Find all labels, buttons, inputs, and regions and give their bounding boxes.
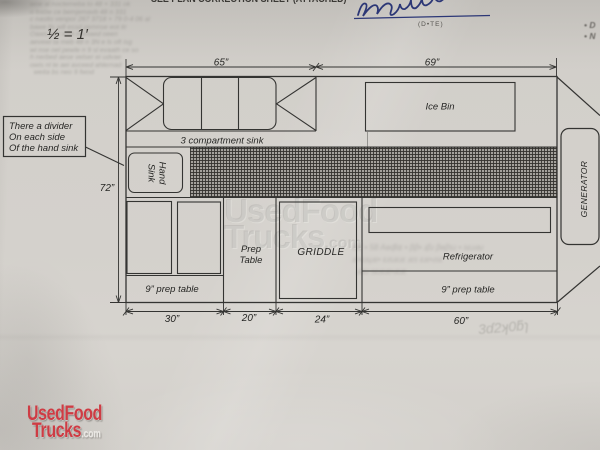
svg-text:Refrigerator: Refrigerator [443, 252, 494, 263]
svg-text:9” prep table: 9” prep table [145, 284, 198, 295]
svg-text:3 compartment sink: 3 compartment sink [181, 136, 265, 147]
svg-text:20”: 20” [241, 313, 257, 324]
svg-text:Table: Table [240, 255, 263, 266]
svg-text:Prep: Prep [241, 244, 261, 255]
svg-text:GRIDDLE: GRIDDLE [297, 247, 344, 258]
svg-text:On each side: On each side [9, 132, 65, 143]
svg-text:There a divider: There a divider [9, 121, 73, 132]
svg-text:9” prep table: 9” prep table [441, 285, 494, 296]
svg-text:30”: 30” [165, 314, 180, 325]
svg-text:69”: 69” [425, 58, 440, 69]
svg-text:72”: 72” [100, 183, 115, 194]
svg-text:Of the hand sink: Of the hand sink [9, 143, 79, 154]
svg-text:GENERATOR: GENERATOR [579, 161, 589, 218]
svg-text:HandSink: HandSink [146, 162, 168, 185]
svg-text:Ice Bin: Ice Bin [425, 102, 454, 113]
svg-text:65”: 65” [214, 58, 229, 69]
svg-text:24”: 24” [314, 315, 330, 326]
svg-text:60”: 60” [454, 316, 469, 327]
